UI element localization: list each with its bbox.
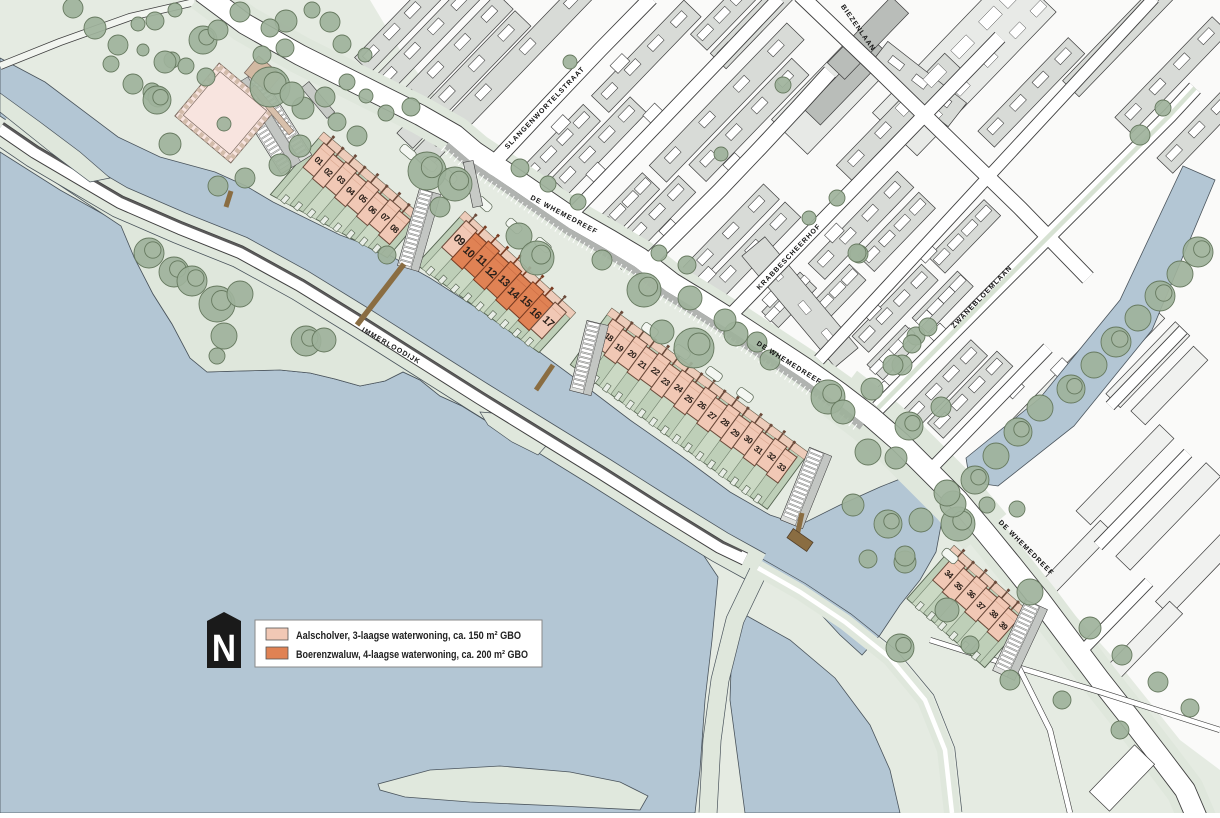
svg-text:Boerenzwaluw, 4-laagse waterwo: Boerenzwaluw, 4-laagse waterwoning, ca. … — [296, 649, 528, 661]
svg-text:N: N — [212, 627, 236, 669]
svg-text:Aalscholver, 3-laagse waterwon: Aalscholver, 3-laagse waterwoning, ca. 1… — [296, 630, 521, 642]
